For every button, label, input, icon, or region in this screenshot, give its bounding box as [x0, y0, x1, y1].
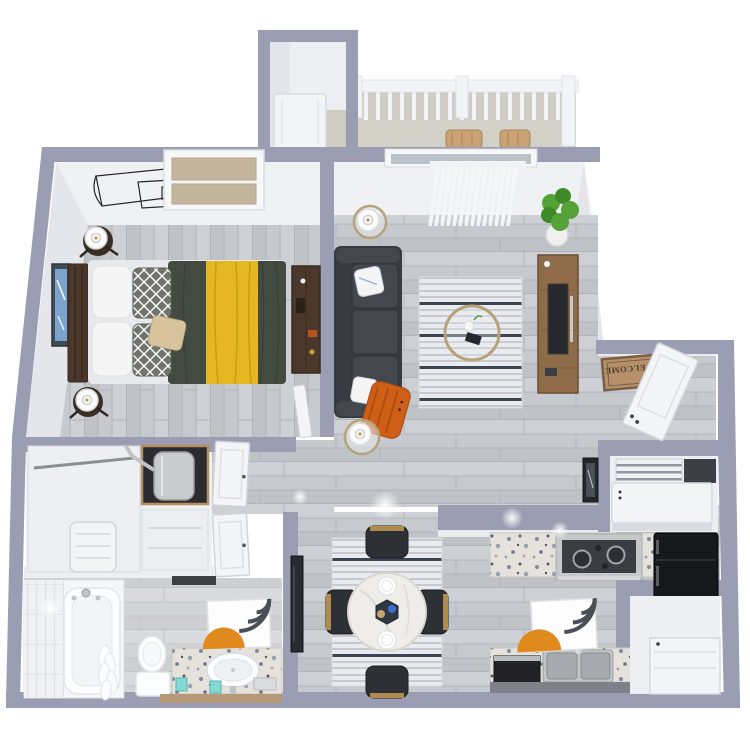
wall-art-entry: [583, 458, 598, 502]
coffee-table: [445, 306, 499, 360]
balcony: [348, 76, 578, 150]
stove: [556, 534, 642, 580]
pillow-accent: [147, 315, 186, 351]
cabinet-front: [490, 682, 644, 693]
hall-closet-door-lower: [212, 513, 249, 577]
tv: [548, 284, 568, 354]
louver-vent: [616, 459, 682, 483]
vanity-faucet: [230, 686, 236, 695]
storage-concrete-floor: [326, 110, 346, 152]
pillow-white-bottom: [92, 322, 132, 376]
soap-dispenser-1: [176, 678, 187, 691]
toilet-tank: [136, 672, 170, 696]
side-table-top: [354, 206, 386, 238]
vanity-wood-trim: [160, 694, 282, 703]
laundry-basket: [70, 522, 116, 572]
hvac-unit: [612, 483, 712, 523]
wall-kitchen-north: [438, 505, 616, 530]
tv-console: [538, 255, 578, 393]
apartment-3d-floor-plan: WELCOME: [0, 0, 750, 750]
place-setting-south: [378, 631, 396, 649]
wall-art-dining: [291, 556, 303, 652]
laundry-closet: [630, 596, 720, 694]
sliding-door: [385, 149, 537, 168]
outlet: [254, 678, 276, 690]
exterior-storage-closet: [258, 30, 358, 152]
balcony-post-right: [562, 76, 575, 146]
bed: [68, 260, 286, 384]
headboard: [68, 264, 88, 382]
linen-closet-interior: [142, 510, 208, 570]
utility-closet: [610, 456, 718, 532]
dining-table: [348, 573, 426, 651]
kitchen-sink: [543, 648, 613, 682]
wall-utility-closet-left: [598, 456, 612, 532]
bathtub: [24, 580, 124, 700]
pillow-pattern-top: [133, 268, 171, 318]
wall-bedroom-living-divider: [320, 147, 334, 437]
hall-closet-door-upper: [212, 441, 249, 507]
soap-dispenser-2: [210, 681, 221, 693]
wall-entry-bottom: [598, 440, 734, 456]
pillow-white-top: [92, 266, 132, 318]
tub-faucet: [82, 589, 90, 597]
washer: [650, 638, 720, 694]
balcony-post-mid: [456, 76, 468, 118]
shower-tile: [24, 580, 64, 698]
side-table-bottom: [345, 420, 379, 454]
vanity: [160, 648, 282, 703]
bedroom-window: [164, 150, 264, 210]
dresser: [292, 266, 320, 373]
wall-art-bedroom: [52, 264, 70, 346]
sofa: [334, 246, 412, 441]
wall-art-bathroom: [201, 599, 271, 649]
bath-door-header: [172, 576, 216, 585]
storage-wall-top: [258, 30, 358, 42]
place-setting-north: [378, 577, 396, 595]
water-heater: [154, 452, 194, 500]
storage-wall-left: [258, 30, 270, 152]
storage-wall-right: [346, 30, 358, 152]
